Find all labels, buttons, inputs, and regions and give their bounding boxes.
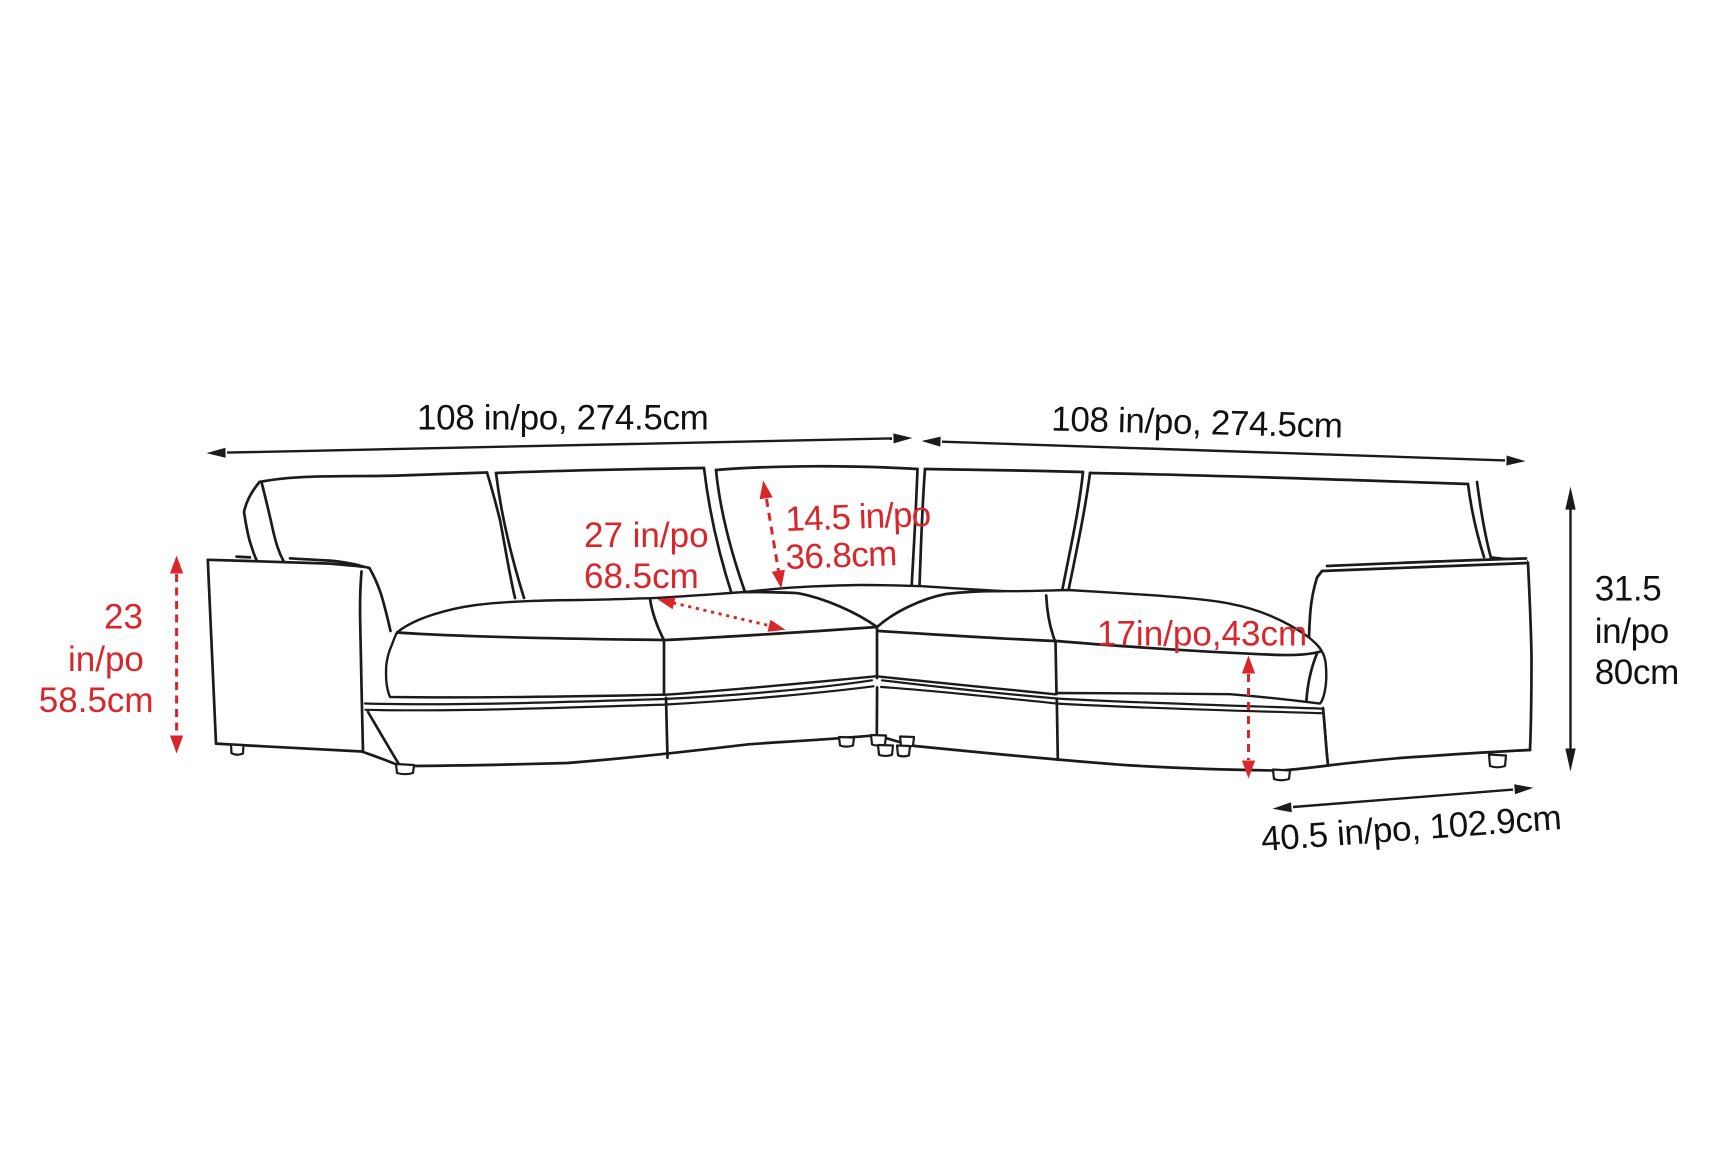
svg-text:80cm: 80cm bbox=[1595, 653, 1679, 692]
svg-text:108 in/po, 274.5cm: 108 in/po, 274.5cm bbox=[1051, 400, 1343, 446]
svg-text:108 in/po, 274.5cm: 108 in/po, 274.5cm bbox=[417, 399, 708, 438]
svg-text:27 in/po: 27 in/po bbox=[584, 516, 709, 555]
svg-text:68.5cm: 68.5cm bbox=[584, 557, 699, 596]
svg-text:in/po: in/po bbox=[68, 640, 144, 679]
svg-text:14.5 in/po: 14.5 in/po bbox=[785, 495, 931, 539]
svg-text:31.5: 31.5 bbox=[1595, 570, 1662, 609]
svg-text:58.5cm: 58.5cm bbox=[39, 681, 154, 720]
svg-text:17in/po,43cm: 17in/po,43cm bbox=[1097, 615, 1307, 654]
svg-text:36.8cm: 36.8cm bbox=[785, 534, 897, 577]
svg-text:23: 23 bbox=[104, 598, 143, 637]
svg-text:in/po: in/po bbox=[1595, 612, 1669, 651]
